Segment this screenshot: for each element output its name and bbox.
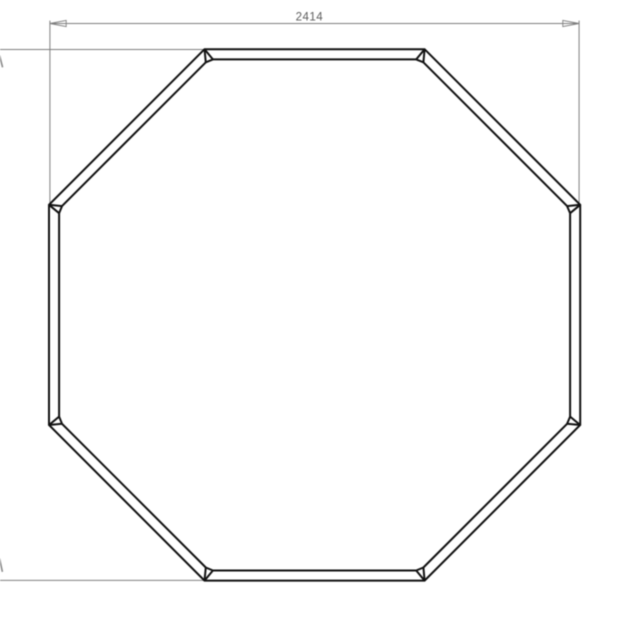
svg-text:2414: 2414	[296, 10, 324, 23]
